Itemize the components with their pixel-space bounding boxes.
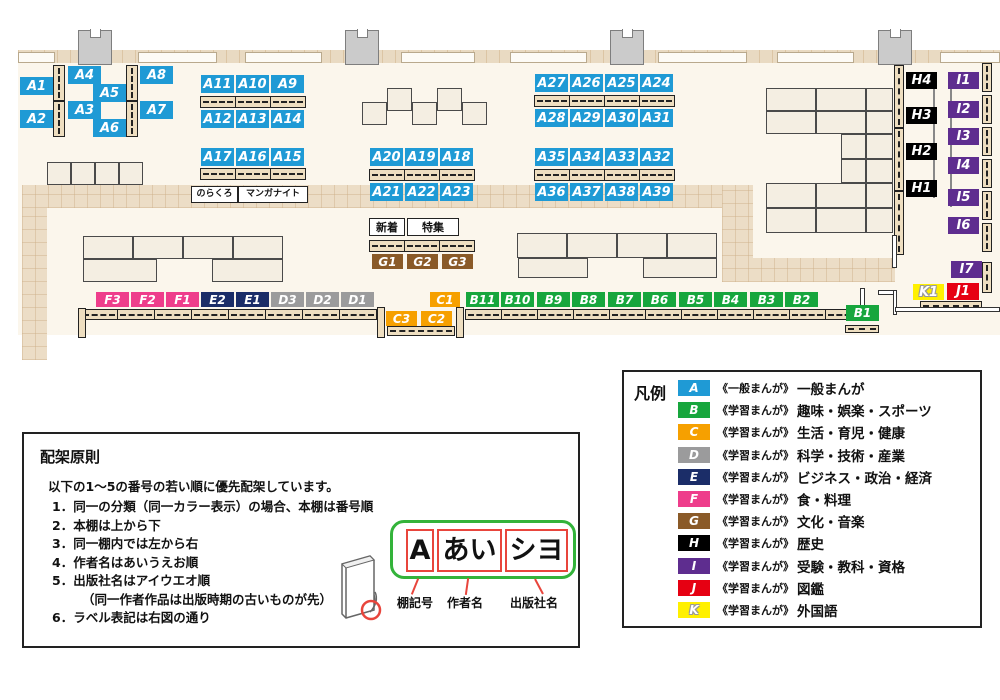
pointer-line bbox=[411, 578, 419, 595]
pillar bbox=[78, 30, 112, 65]
wall-piece bbox=[78, 308, 86, 338]
legend-type: 《学習まんが》 bbox=[717, 402, 794, 418]
legend-label: 文化・音楽 bbox=[797, 511, 865, 531]
principles-item: 2．本棚は上から下 bbox=[52, 517, 373, 536]
bookshelf bbox=[265, 309, 303, 320]
legend-type: 《学習まんが》 bbox=[717, 424, 794, 440]
table bbox=[362, 102, 387, 125]
shelf-label-A12: A12 bbox=[201, 110, 234, 128]
table bbox=[866, 111, 893, 134]
legend-box: 凡例 A《一般まんが》一般まんがB《学習まんが》趣味・娯楽・スポーツC《学習まん… bbox=[622, 370, 982, 628]
table bbox=[816, 88, 866, 111]
bookshelf bbox=[191, 309, 229, 320]
shelf-label-B7: B7 bbox=[608, 292, 641, 307]
shelf-label-I5: I5 bbox=[948, 189, 979, 206]
pointer-line bbox=[534, 579, 544, 595]
table bbox=[83, 259, 157, 282]
shelf-label-B4: B4 bbox=[714, 292, 747, 307]
bookshelf bbox=[982, 127, 992, 156]
table bbox=[95, 162, 119, 185]
shelf-label-A30: A30 bbox=[605, 109, 638, 127]
shelf-label-A17: A17 bbox=[201, 148, 234, 166]
legend-chip-C: C bbox=[678, 424, 710, 440]
legend-type: 《学習まんが》 bbox=[717, 491, 794, 507]
shelf-label-A9: A9 bbox=[271, 75, 304, 93]
wall-window bbox=[658, 52, 747, 63]
shelf-label-A18: A18 bbox=[440, 148, 473, 166]
bookshelf bbox=[982, 63, 992, 92]
shelf-label-B10: B10 bbox=[501, 292, 534, 307]
table bbox=[183, 236, 233, 259]
shelf-label-A6: A6 bbox=[93, 119, 126, 137]
bookshelf bbox=[604, 169, 640, 181]
bookshelf bbox=[894, 65, 904, 128]
bookshelf bbox=[639, 95, 675, 107]
shelf-label-A39: A39 bbox=[640, 183, 673, 201]
shelf-label-A29: A29 bbox=[570, 109, 603, 127]
shelf-label-A10: A10 bbox=[236, 75, 269, 93]
shelf-label-G2: G2 bbox=[407, 254, 438, 269]
legend-item-J: J《学習まんが》図鑑 bbox=[678, 580, 932, 596]
legend-item-H: H《学習まんが》歴史 bbox=[678, 535, 932, 551]
shelf-label-E1: E1 bbox=[236, 292, 269, 307]
table bbox=[766, 88, 816, 111]
legend-chip-B: B bbox=[678, 402, 710, 418]
pillar bbox=[345, 30, 379, 65]
shelf-label-K1: K1 bbox=[913, 284, 944, 300]
shelf-label-I2: I2 bbox=[948, 101, 979, 118]
legend-item-D: D《学習まんが》科学・技術・産業 bbox=[678, 447, 932, 463]
shelf-label-A3: A3 bbox=[68, 101, 101, 119]
bookshelf bbox=[569, 95, 605, 107]
table bbox=[816, 111, 866, 134]
table bbox=[517, 233, 567, 258]
shelf-label-H2: H2 bbox=[906, 143, 937, 160]
legend-title: 凡例 bbox=[634, 380, 666, 404]
bookshelf bbox=[645, 309, 682, 320]
table bbox=[866, 159, 893, 183]
bookshelf bbox=[439, 169, 475, 181]
principles-item: 1．同一の分類（同一カラー表示）の場合、本棚は番号順 bbox=[52, 498, 373, 517]
legend-type: 《学習まんが》 bbox=[717, 535, 794, 551]
spine-author: あい bbox=[437, 529, 502, 572]
legend-item-B: B《学習まんが》趣味・娯楽・スポーツ bbox=[678, 402, 932, 418]
principles-item: 4．作者名はあいうえお順 bbox=[52, 554, 373, 573]
wall-line bbox=[892, 235, 897, 268]
principles-intro: 以下の1～5の番号の若い順に優先配架しています。 bbox=[48, 476, 339, 495]
book-spine-illustration bbox=[332, 550, 388, 626]
bookshelf bbox=[200, 96, 236, 108]
shelf-label-A35: A35 bbox=[535, 148, 568, 166]
bookshelf bbox=[845, 325, 879, 333]
shelf-label-A19: A19 bbox=[405, 148, 438, 166]
legend-item-F: F《学習まんが》食・料理 bbox=[678, 491, 932, 507]
table bbox=[518, 258, 588, 278]
legend-type: 《学習まんが》 bbox=[717, 580, 794, 596]
legend-label: 図鑑 bbox=[797, 578, 824, 598]
bookshelf bbox=[339, 309, 377, 320]
legend-label: 食・料理 bbox=[797, 489, 851, 509]
shelf-label-H1: H1 bbox=[906, 180, 937, 197]
table bbox=[462, 102, 487, 125]
table bbox=[412, 102, 437, 125]
bookshelf bbox=[369, 169, 405, 181]
caption-publisher: 出版社名 bbox=[510, 594, 558, 611]
bookshelf bbox=[982, 159, 992, 188]
principles-item: 3．同一棚内では左から右 bbox=[52, 535, 373, 554]
legend-label: 趣味・娯楽・スポーツ bbox=[797, 400, 932, 420]
wall-window bbox=[510, 52, 587, 63]
wall-window bbox=[940, 52, 1000, 63]
principles-list: 1．同一の分類（同一カラー表示）の場合、本棚は番号順2．本棚は上から下3．同一棚… bbox=[52, 498, 373, 628]
shelf-label-J1: J1 bbox=[947, 283, 979, 300]
bookshelf bbox=[534, 95, 570, 107]
shelf-label-A22: A22 bbox=[405, 183, 438, 201]
legend-chip-D: D bbox=[678, 447, 710, 463]
shelf-label-H4: H4 bbox=[906, 72, 937, 89]
legend-item-K: K《学習まんが》外国語 bbox=[678, 602, 932, 618]
shelf-label-B9: B9 bbox=[537, 292, 570, 307]
table bbox=[567, 233, 617, 258]
shelf-label-A7: A7 bbox=[140, 101, 173, 119]
table bbox=[866, 183, 893, 208]
bookshelf bbox=[117, 309, 155, 320]
legend-item-E: E《学習まんが》ビジネス・政治・経済 bbox=[678, 469, 932, 485]
table bbox=[233, 236, 283, 259]
shelf-label-I4: I4 bbox=[948, 157, 979, 174]
table bbox=[617, 233, 667, 258]
shelf-label-A37: A37 bbox=[570, 183, 603, 201]
shelf-label-A31: A31 bbox=[640, 109, 673, 127]
legend-label: 科学・技術・産業 bbox=[797, 445, 905, 465]
table bbox=[212, 259, 283, 282]
table bbox=[841, 159, 866, 183]
wall-window bbox=[777, 52, 854, 63]
shelf-label-A32: A32 bbox=[640, 148, 673, 166]
bookshelf bbox=[235, 96, 271, 108]
spine-shelf-code: A bbox=[406, 529, 434, 572]
bookshelf bbox=[573, 309, 610, 320]
bookshelf bbox=[501, 309, 538, 320]
shelf-label-B3: B3 bbox=[750, 292, 783, 307]
bookshelf bbox=[609, 309, 646, 320]
shelf-label-I1: I1 bbox=[948, 72, 979, 89]
legend-label: 歴史 bbox=[797, 533, 824, 553]
table bbox=[437, 88, 462, 111]
shelf-label-A34: A34 bbox=[570, 148, 603, 166]
shelf-label-B11: B11 bbox=[466, 292, 499, 307]
bookshelf bbox=[604, 95, 640, 107]
legend-chip-J: J bbox=[678, 580, 710, 596]
shelf-label-A14: A14 bbox=[271, 110, 304, 128]
bookshelf bbox=[200, 168, 236, 180]
bookshelf bbox=[53, 101, 65, 137]
shelf-label-A15: A15 bbox=[271, 148, 304, 166]
shelf-label-A5: A5 bbox=[93, 84, 126, 102]
table bbox=[119, 162, 143, 185]
legend-type: 《学習まんが》 bbox=[717, 513, 794, 529]
legend-type: 《一般まんが》 bbox=[717, 380, 794, 396]
spine-label-diagram: A あい シヨ bbox=[390, 520, 576, 579]
shelf-label-F2: F2 bbox=[131, 292, 164, 307]
shelf-label-A38: A38 bbox=[605, 183, 638, 201]
legend-chip-K: K bbox=[678, 602, 710, 618]
legend-type: 《学習まんが》 bbox=[717, 447, 794, 463]
shelf-label-I6: I6 bbox=[948, 217, 979, 234]
pillar bbox=[878, 30, 912, 65]
wall-piece bbox=[456, 307, 464, 338]
bookshelf bbox=[270, 96, 306, 108]
bookshelf bbox=[982, 262, 992, 293]
shelf-label-A28: A28 bbox=[535, 109, 568, 127]
legend-chip-I: I bbox=[678, 558, 710, 574]
legend-type: 《学習まんが》 bbox=[717, 469, 794, 485]
table bbox=[387, 88, 412, 111]
shelf-label-G1: G1 bbox=[372, 254, 403, 269]
wall-line bbox=[895, 307, 1000, 312]
legend-type: 《学習まんが》 bbox=[717, 558, 794, 574]
bookshelf bbox=[537, 309, 574, 320]
shelf-label-B1: B1 bbox=[846, 305, 879, 321]
table bbox=[667, 233, 717, 258]
bookshelf bbox=[126, 65, 138, 101]
caption-author: 作者名 bbox=[447, 594, 483, 611]
principles-item: 6．ラベル表記は右図の通り bbox=[52, 609, 373, 628]
shelf-label-A16: A16 bbox=[236, 148, 269, 166]
shelf-label-H3: H3 bbox=[906, 107, 937, 124]
shelf-label-A23: A23 bbox=[440, 183, 473, 201]
shelf-label-A21: A21 bbox=[370, 183, 403, 201]
legend-rows: A《一般まんが》一般まんがB《学習まんが》趣味・娯楽・スポーツC《学習まんが》生… bbox=[678, 380, 932, 624]
shelf-label-I7: I7 bbox=[951, 261, 982, 278]
shelf-label-A33: A33 bbox=[605, 148, 638, 166]
bookshelf bbox=[235, 168, 271, 180]
pointer-line bbox=[465, 578, 469, 595]
shelf-label-D3: D3 bbox=[271, 292, 304, 307]
table bbox=[643, 258, 717, 278]
shelf-label-A2: A2 bbox=[20, 110, 53, 128]
map-note: のらくろ bbox=[191, 186, 238, 203]
bookshelf bbox=[982, 223, 992, 252]
bookshelf bbox=[404, 169, 440, 181]
legend-chip-H: H bbox=[678, 535, 710, 551]
shelf-label-B8: B8 bbox=[572, 292, 605, 307]
bookshelf bbox=[681, 309, 718, 320]
shelf-label-A11: A11 bbox=[201, 75, 234, 93]
principles-title: 配架原則 bbox=[40, 446, 100, 467]
floor-map-page: A1A2A4A5A3A6A8A7A11A10A9A12A13A14A17A16A… bbox=[0, 0, 1000, 700]
bookshelf bbox=[404, 240, 440, 252]
shelf-label-G3: G3 bbox=[442, 254, 473, 269]
legend-label: 一般まんが bbox=[797, 378, 865, 398]
map-note: 新着 bbox=[369, 218, 405, 236]
shelf-label-B2: B2 bbox=[785, 292, 818, 307]
bookshelf bbox=[302, 309, 340, 320]
legend-item-G: G《学習まんが》文化・音楽 bbox=[678, 513, 932, 529]
bookshelf bbox=[789, 309, 826, 320]
bookshelf bbox=[154, 309, 192, 320]
shelf-label-F1: F1 bbox=[166, 292, 199, 307]
legend-item-A: A《一般まんが》一般まんが bbox=[678, 380, 932, 396]
shelf-label-A8: A8 bbox=[140, 66, 173, 84]
bookshelf bbox=[717, 309, 754, 320]
caption-shelf-code: 棚記号 bbox=[397, 594, 433, 611]
table bbox=[816, 208, 866, 233]
table bbox=[841, 134, 866, 159]
legend-type: 《学習まんが》 bbox=[717, 602, 794, 618]
shelf-label-D2: D2 bbox=[306, 292, 339, 307]
table bbox=[866, 88, 893, 111]
shelf-label-A24: A24 bbox=[640, 74, 673, 92]
shelf-label-A27: A27 bbox=[535, 74, 568, 92]
map-note: マンガナイト bbox=[238, 186, 308, 203]
wall-window bbox=[401, 52, 475, 63]
shelf-label-D1: D1 bbox=[341, 292, 374, 307]
legend-label: 外国語 bbox=[797, 600, 838, 620]
wall-window bbox=[18, 52, 55, 63]
table bbox=[816, 183, 866, 208]
pillar bbox=[610, 30, 644, 65]
bookshelf bbox=[126, 101, 138, 137]
legend-label: ビジネス・政治・経済 bbox=[797, 467, 932, 487]
shelf-label-F3: F3 bbox=[96, 292, 129, 307]
legend-label: 受験・教科・資格 bbox=[797, 556, 905, 576]
legend-label: 生活・育児・健康 bbox=[797, 422, 905, 442]
legend-chip-E: E bbox=[678, 469, 710, 485]
wall-piece bbox=[377, 307, 385, 338]
bookshelf bbox=[534, 169, 570, 181]
bookshelf bbox=[753, 309, 790, 320]
table bbox=[866, 134, 893, 159]
walkway bbox=[722, 258, 895, 282]
table bbox=[766, 111, 816, 134]
walkway bbox=[22, 185, 47, 360]
bookshelf bbox=[270, 168, 306, 180]
table bbox=[133, 236, 183, 259]
bookshelf bbox=[569, 169, 605, 181]
shelf-label-A1: A1 bbox=[20, 77, 53, 95]
bookshelf bbox=[465, 309, 502, 320]
shelf-label-C2: C2 bbox=[421, 311, 452, 326]
shelf-label-A26: A26 bbox=[570, 74, 603, 92]
principles-item: （同一作者作品は出版時期の古いものが先） bbox=[52, 591, 373, 610]
shelf-label-A13: A13 bbox=[236, 110, 269, 128]
legend-chip-A: A bbox=[678, 380, 710, 396]
principles-item: 5．出版社名はアイウエオ順 bbox=[52, 572, 373, 591]
wall-window bbox=[245, 52, 322, 63]
shelf-label-I3: I3 bbox=[948, 128, 979, 145]
shelf-label-A20: A20 bbox=[370, 148, 403, 166]
bookshelf bbox=[639, 169, 675, 181]
table bbox=[71, 162, 95, 185]
spine-publisher: シヨ bbox=[505, 529, 568, 572]
bookshelf bbox=[228, 309, 266, 320]
shelf-label-E2: E2 bbox=[201, 292, 234, 307]
bookshelf bbox=[369, 240, 405, 252]
shelf-label-A25: A25 bbox=[605, 74, 638, 92]
bookshelf bbox=[982, 95, 992, 124]
bookshelf bbox=[894, 128, 904, 191]
bookshelf bbox=[387, 326, 455, 336]
table bbox=[47, 162, 71, 185]
wall-window bbox=[138, 52, 217, 63]
table bbox=[766, 208, 816, 233]
map-note: 特集 bbox=[407, 218, 459, 236]
shelf-label-C1: C1 bbox=[430, 292, 460, 307]
table bbox=[866, 208, 893, 233]
legend-chip-F: F bbox=[678, 491, 710, 507]
principles-box: 配架原則 以下の1～5の番号の若い順に優先配架しています。 1．同一の分類（同一… bbox=[22, 432, 580, 648]
shelf-label-B6: B6 bbox=[643, 292, 676, 307]
legend-item-I: I《学習まんが》受験・教科・資格 bbox=[678, 558, 932, 574]
bookshelf bbox=[439, 240, 475, 252]
shelf-label-B5: B5 bbox=[679, 292, 712, 307]
table bbox=[83, 236, 133, 259]
shelf-label-A36: A36 bbox=[535, 183, 568, 201]
bookshelf bbox=[982, 191, 992, 220]
table bbox=[766, 183, 816, 208]
shelf-label-C3: C3 bbox=[386, 311, 417, 326]
legend-chip-G: G bbox=[678, 513, 710, 529]
legend-item-C: C《学習まんが》生活・育児・健康 bbox=[678, 424, 932, 440]
shelf-label-A4: A4 bbox=[68, 66, 101, 84]
bookshelf bbox=[53, 65, 65, 101]
